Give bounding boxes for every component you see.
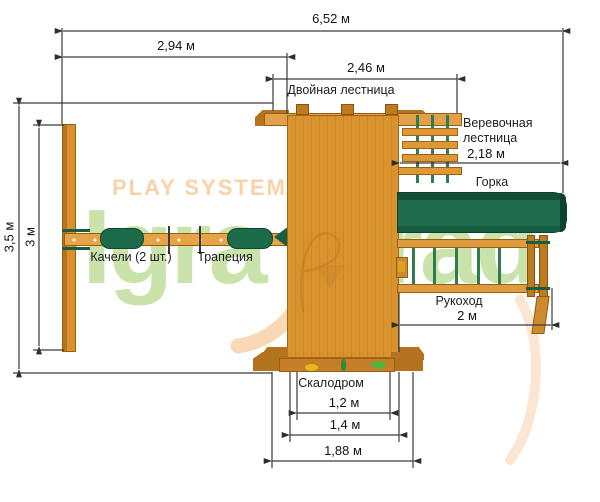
dim-swing-section: 2,94 м bbox=[157, 39, 195, 53]
label-double-ladder: Двойная лестница bbox=[287, 84, 394, 98]
label-swings: Качели (2 шт.) bbox=[90, 251, 171, 265]
dim-climbing-outer: 1,88 м bbox=[324, 444, 362, 458]
dim-climbing-inner: 1,2 м bbox=[329, 396, 360, 410]
playground-top-view-diagram: PLAY SYSTEM Igra Grad bbox=[0, 0, 600, 502]
dim-tower-section: 2,46 м bbox=[347, 61, 385, 75]
label-monkey-bars: Рукоход bbox=[435, 295, 482, 309]
label-trapeze: Трапеция bbox=[197, 251, 252, 265]
dim-total-width: 6,52 м bbox=[312, 12, 350, 26]
label-slide: Горка bbox=[476, 176, 509, 190]
dim-swing-frame-depth: 3 м bbox=[23, 227, 38, 247]
label-rope-ladder-line1: Веревочная bbox=[463, 117, 533, 131]
label-climbing-wall: Скалодром bbox=[298, 377, 364, 391]
label-rope-ladder-line2: лестница bbox=[463, 132, 517, 146]
dim-monkey-bars: 2 м bbox=[457, 309, 477, 323]
dim-rope-ladder: 2,18 м bbox=[467, 147, 505, 161]
dim-overall-depth: 3,5 м bbox=[2, 222, 17, 253]
dim-climbing-middle: 1,4 м bbox=[330, 418, 361, 432]
